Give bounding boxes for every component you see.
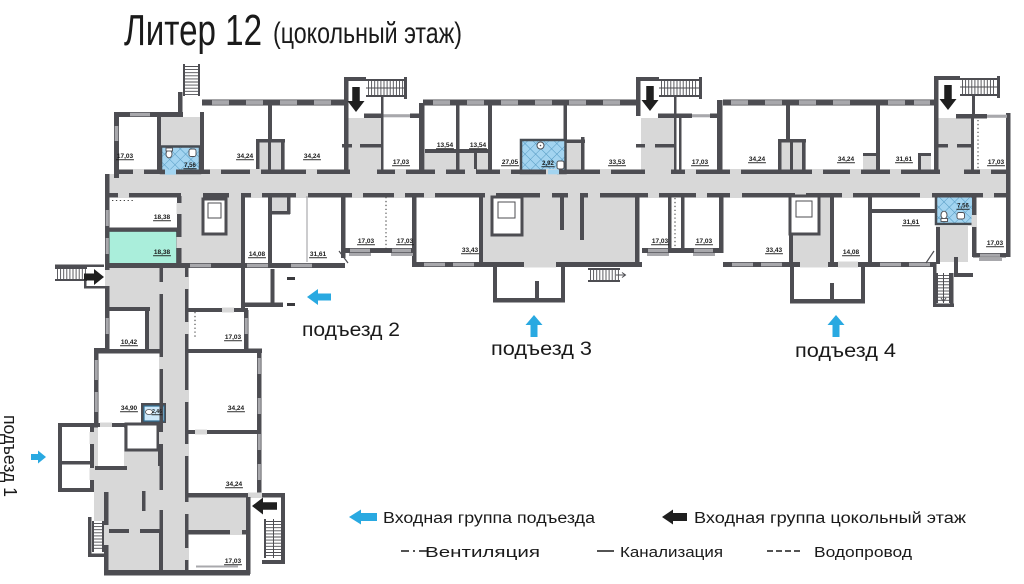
svg-text:13,54: 13,54 (437, 142, 454, 149)
svg-text:17,03: 17,03 (987, 240, 1004, 247)
svg-text:2,46: 2,46 (152, 409, 162, 415)
svg-text:17,03: 17,03 (393, 159, 410, 166)
svg-text:34,24: 34,24 (838, 156, 855, 163)
svg-text:17,03: 17,03 (225, 334, 242, 341)
svg-text:34,24: 34,24 (226, 481, 243, 488)
svg-text:Литер 12: Литер 12 (124, 6, 262, 55)
svg-text:7,56: 7,56 (184, 163, 196, 169)
svg-text:31,61: 31,61 (896, 156, 913, 163)
svg-text:Входная группа подъезда: Входная группа подъезда (383, 510, 595, 527)
svg-text:17,03: 17,03 (117, 153, 134, 160)
svg-text:Канализация: Канализация (620, 544, 723, 561)
svg-text:34,90: 34,90 (121, 405, 138, 412)
svg-text:подъезд 4: подъезд 4 (795, 341, 896, 362)
svg-text:Входная группа цокольный этаж: Входная группа цокольный этаж (694, 510, 967, 527)
svg-text:17,03: 17,03 (358, 238, 375, 245)
svg-text:17,03: 17,03 (225, 558, 242, 565)
svg-text:33,53: 33,53 (609, 159, 626, 166)
svg-text:31,61: 31,61 (903, 219, 920, 226)
svg-text:34,24: 34,24 (749, 156, 766, 163)
svg-text:17,03: 17,03 (652, 238, 669, 245)
svg-text:14,08: 14,08 (249, 251, 266, 258)
svg-text:подъезд 3: подъезд 3 (491, 339, 592, 360)
svg-text:14,08: 14,08 (843, 249, 860, 256)
svg-text:10,42: 10,42 (121, 339, 138, 346)
svg-text:7,56: 7,56 (957, 204, 969, 210)
svg-text:подъезд 1: подъезд 1 (0, 415, 20, 497)
svg-text:33,43: 33,43 (462, 247, 479, 254)
svg-text:27,05: 27,05 (502, 159, 519, 166)
svg-text:Водопровод: Водопровод (814, 544, 912, 561)
svg-text:34,24: 34,24 (228, 405, 245, 412)
svg-text:Вентиляция: Вентиляция (425, 544, 540, 561)
svg-text:13,54: 13,54 (470, 142, 487, 149)
svg-text:17,03: 17,03 (397, 238, 414, 245)
svg-text:34,24: 34,24 (304, 153, 321, 160)
svg-text:17,03: 17,03 (988, 159, 1005, 166)
svg-text:34,24: 34,24 (237, 153, 254, 160)
svg-text:2,92: 2,92 (542, 161, 554, 167)
svg-text:17,03: 17,03 (692, 159, 709, 166)
svg-text:33,43: 33,43 (766, 247, 783, 254)
svg-text:подъезд 2: подъезд 2 (302, 320, 400, 341)
svg-text:18,38: 18,38 (154, 249, 171, 256)
svg-text:31,61: 31,61 (310, 251, 327, 258)
svg-text:17,03: 17,03 (696, 238, 713, 245)
svg-text:(цокольный этаж): (цокольный этаж) (273, 17, 462, 50)
svg-text:18,38: 18,38 (154, 214, 171, 221)
